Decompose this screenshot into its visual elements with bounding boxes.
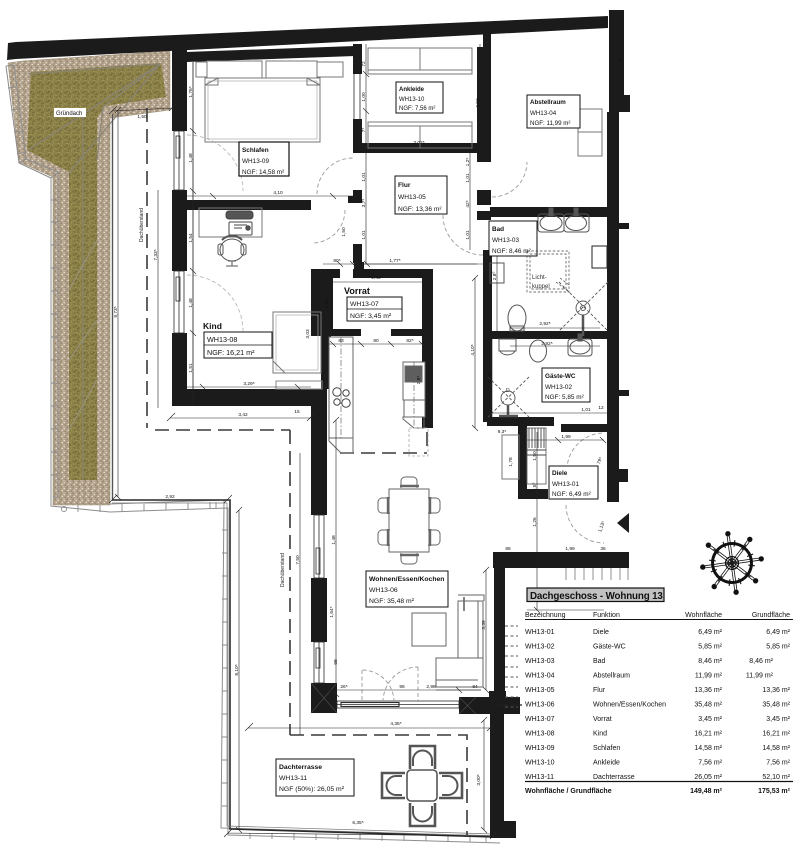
svg-text:4,10: 4,10 [273, 190, 283, 196]
svg-text:2,45⁵: 2,45⁵ [371, 275, 382, 281]
svg-text:3,42: 3,42 [238, 412, 248, 418]
svg-text:NGF: 7,56 m²: NGF: 7,56 m² [399, 106, 435, 112]
svg-text:7⁵: 7⁵ [361, 128, 367, 133]
svg-text:Dachterrasse: Dachterrasse [279, 764, 322, 771]
svg-text:1,99: 1,99 [565, 546, 575, 552]
svg-text:WH13-05: WH13-05 [398, 194, 426, 201]
svg-text:3,03: 3,03 [305, 329, 311, 339]
svg-text:Wohnfläche: Wohnfläche [685, 612, 722, 619]
svg-text:52,10 m²: 52,10 m² [762, 774, 790, 781]
svg-text:Abstellraum: Abstellraum [530, 99, 566, 106]
svg-text:Gäste-WC: Gäste-WC [593, 644, 626, 651]
svg-text:Licht-: Licht- [532, 275, 547, 281]
svg-text:WH13-11: WH13-11 [279, 775, 307, 782]
svg-text:NGF: 35,48 m²: NGF: 35,48 m² [369, 598, 415, 605]
svg-text:WH13-11: WH13-11 [525, 774, 554, 781]
svg-text:82⁵: 82⁵ [406, 338, 413, 344]
svg-text:Flur: Flur [593, 687, 606, 694]
svg-text:3,00⁵: 3,00⁵ [476, 774, 482, 785]
svg-text:6,49 m²: 6,49 m² [766, 629, 790, 636]
svg-text:5,85 m²: 5,85 m² [766, 644, 790, 651]
svg-text:80: 80 [373, 338, 379, 344]
svg-text:WH13-09: WH13-09 [525, 745, 555, 752]
svg-text:Dachüberstand: Dachüberstand [280, 553, 286, 587]
svg-text:Gründach: Gründach [56, 111, 82, 117]
svg-text:80⁵: 80⁵ [333, 258, 340, 264]
svg-text:Schlafen: Schlafen [242, 147, 269, 154]
svg-text:WH13-01: WH13-01 [525, 629, 555, 636]
svg-text:Dachterrasse: Dachterrasse [593, 774, 635, 781]
svg-text:1,50: 1,50 [341, 227, 347, 237]
svg-text:Wohnfläche / Grundfläche: Wohnfläche / Grundfläche [525, 788, 612, 795]
svg-text:3,7⁵: 3,7⁵ [361, 199, 367, 208]
svg-text:NGF: 8,46 m²: NGF: 8,46 m² [492, 248, 531, 255]
svg-text:WH13-03: WH13-03 [525, 658, 555, 665]
svg-text:1,78: 1,78 [508, 457, 514, 467]
svg-text:2,8⁰: 2,8⁰ [492, 272, 498, 281]
svg-text:D: D [506, 388, 510, 394]
svg-text:NGF (50%): 26,05 m²: NGF (50%): 26,05 m² [279, 786, 345, 793]
svg-text:NGF: 16,21 m²: NGF: 16,21 m² [207, 348, 255, 357]
svg-text:149,48 m²: 149,48 m² [690, 788, 723, 795]
svg-text:Diele: Diele [552, 470, 568, 477]
svg-text:NGF: 5,85 m²: NGF: 5,85 m² [545, 394, 584, 401]
svg-text:6,49 m²: 6,49 m² [698, 629, 722, 636]
svg-text:WH13-05: WH13-05 [525, 687, 555, 694]
svg-text:Bad: Bad [593, 658, 606, 665]
svg-text:WH13-07: WH13-07 [350, 301, 379, 308]
svg-text:15: 15 [294, 409, 300, 415]
svg-text:7,56 m²: 7,56 m² [766, 760, 790, 767]
svg-text:3,39: 3,39 [481, 620, 487, 630]
svg-text:Bad: Bad [492, 226, 504, 233]
svg-text:2,92: 2,92 [165, 494, 175, 500]
svg-text:1,01: 1,01 [465, 230, 471, 240]
svg-text:WH13-07: WH13-07 [525, 716, 555, 723]
svg-text:Wohnen/Essen/Kochen: Wohnen/Essen/Kochen [593, 702, 666, 709]
svg-text:3,29⁵: 3,29⁵ [243, 381, 254, 387]
svg-text:NGF: 13,36 m²: NGF: 13,36 m² [398, 206, 442, 213]
svg-text:2,98: 2,98 [426, 684, 436, 690]
svg-text:8,46 m²: 8,46 m² [698, 658, 722, 665]
svg-text:12: 12 [598, 405, 604, 411]
svg-text:1,51: 1,51 [188, 363, 194, 373]
svg-text:Wohnen/Essen/Kochen: Wohnen/Essen/Kochen [369, 576, 444, 583]
svg-text:1,26: 1,26 [532, 517, 538, 527]
svg-text:9,73⁵: 9,73⁵ [113, 306, 119, 317]
svg-text:Kind: Kind [593, 731, 607, 738]
svg-text:13,36 m²: 13,36 m² [694, 687, 722, 694]
svg-text:1,01: 1,01 [465, 173, 471, 183]
svg-text:175,53 m²: 175,53 m² [758, 788, 791, 795]
svg-text:WH13-10: WH13-10 [525, 760, 555, 767]
svg-text:11,99 m²: 11,99 m² [746, 673, 774, 680]
svg-text:Abstellraum: Abstellraum [593, 673, 630, 680]
svg-text:WH13-02: WH13-02 [545, 384, 572, 391]
svg-text:2,92⁵: 2,92⁵ [541, 341, 552, 347]
svg-text:NGF: 3,45 m²: NGF: 3,45 m² [350, 313, 392, 320]
svg-text:2,9⁵: 2,9⁵ [416, 376, 422, 385]
svg-text:Ankleide: Ankleide [593, 760, 620, 767]
svg-text:2,92⁵: 2,92⁵ [539, 321, 550, 327]
svg-text:1,5⁰: 1,5⁰ [532, 483, 538, 492]
svg-text:1,76⁵: 1,76⁵ [188, 86, 194, 97]
svg-text:Bezeichnung: Bezeichnung [525, 612, 566, 619]
svg-text:7,50: 7,50 [295, 555, 301, 565]
svg-text:3,45 m²: 3,45 m² [766, 716, 790, 723]
svg-text:72: 72 [617, 58, 623, 64]
svg-text:Dachgeschoss - Wohnung 13: Dachgeschoss - Wohnung 13 [530, 591, 663, 602]
svg-text:1,2⁵: 1,2⁵ [465, 158, 471, 167]
svg-text:36: 36 [600, 546, 606, 552]
svg-text:26⁵: 26⁵ [340, 684, 347, 690]
svg-text:88: 88 [505, 546, 511, 552]
svg-text:72: 72 [361, 61, 367, 67]
svg-text:83: 83 [338, 338, 344, 344]
svg-text:9,3⁵: 9,3⁵ [498, 429, 507, 435]
svg-text:2,60: 2,60 [487, 373, 493, 383]
svg-text:WH13-01: WH13-01 [552, 481, 579, 488]
svg-text:1,01: 1,01 [581, 407, 591, 413]
svg-text:1,01: 1,01 [361, 172, 367, 182]
svg-text:Funktion: Funktion [593, 612, 620, 619]
svg-text:98: 98 [399, 684, 405, 690]
svg-text:1,50: 1,50 [532, 451, 538, 461]
svg-text:Vorrat: Vorrat [593, 716, 612, 723]
svg-text:WH13-08: WH13-08 [525, 731, 555, 738]
svg-text:16,21 m²: 16,21 m² [694, 731, 722, 738]
svg-text:WH13-03: WH13-03 [492, 237, 519, 244]
svg-text:1,40⁵: 1,40⁵ [324, 297, 330, 308]
svg-text:NGF: 6,49 m²: NGF: 6,49 m² [552, 491, 591, 498]
svg-text:1,00: 1,00 [361, 92, 367, 102]
svg-text:1,48: 1,48 [331, 535, 337, 545]
svg-text:11,99 m²: 11,99 m² [695, 673, 723, 680]
svg-text:1,50: 1,50 [137, 114, 147, 120]
svg-text:7,56 m²: 7,56 m² [698, 760, 722, 767]
svg-text:WH13-06: WH13-06 [525, 702, 555, 709]
svg-text:WH13-04: WH13-04 [525, 673, 555, 680]
svg-text:35,48 m²: 35,48 m² [694, 702, 722, 709]
svg-text:8,46 m²: 8,46 m² [749, 658, 773, 665]
svg-text:kuppel: kuppel [532, 284, 550, 290]
svg-text:Grundfläche: Grundfläche [752, 612, 790, 619]
svg-text:84: 84 [472, 684, 478, 690]
svg-text:WH13-06: WH13-06 [369, 587, 398, 594]
svg-text:3,45 m²: 3,45 m² [698, 716, 722, 723]
svg-text:NGF: 11,99 m²: NGF: 11,99 m² [530, 120, 570, 127]
svg-text:Gäste-WC: Gäste-WC [545, 373, 576, 380]
svg-text:Diele: Diele [593, 629, 609, 636]
svg-text:Flur: Flur [398, 182, 411, 189]
svg-text:1,48: 1,48 [188, 153, 194, 163]
svg-text:1,54: 1,54 [188, 233, 194, 243]
svg-text:NGF: 14,58 m²: NGF: 14,58 m² [242, 169, 284, 176]
svg-text:Schlafen: Schlafen [593, 745, 620, 752]
svg-text:Vorrat: Vorrat [344, 286, 370, 296]
svg-text:26,05 m²: 26,05 m² [694, 774, 722, 781]
svg-text:WH13-10: WH13-10 [399, 97, 425, 103]
svg-text:98: 98 [333, 659, 339, 665]
svg-text:WH13-02: WH13-02 [525, 644, 555, 651]
svg-text:35,48 m²: 35,48 m² [762, 702, 790, 709]
svg-text:1,64⁵: 1,64⁵ [329, 606, 335, 617]
svg-text:16,21 m²: 16,21 m² [762, 731, 790, 738]
svg-text:WH13-09: WH13-09 [242, 158, 269, 165]
svg-text:Kind: Kind [203, 321, 222, 331]
svg-text:1,99: 1,99 [561, 434, 571, 440]
svg-text:1,48: 1,48 [188, 298, 194, 308]
svg-text:1,01: 1,01 [361, 230, 367, 240]
svg-text:8,10⁵: 8,10⁵ [234, 664, 240, 675]
svg-text:14,58 m²: 14,58 m² [694, 745, 722, 752]
svg-text:Ankleide: Ankleide [399, 87, 425, 93]
svg-text:1,77⁵: 1,77⁵ [389, 258, 400, 264]
svg-text:3,02⁵: 3,02⁵ [413, 140, 424, 146]
svg-text:Dachüberstand: Dachüberstand [139, 208, 145, 242]
svg-text:14,58 m²: 14,58 m² [762, 745, 790, 752]
svg-text:6,35⁵: 6,35⁵ [352, 820, 363, 826]
svg-text:2,50: 2,50 [475, 98, 481, 108]
svg-text:4,10⁵: 4,10⁵ [470, 344, 476, 355]
svg-text:7,33⁵: 7,33⁵ [153, 249, 159, 260]
svg-text:42⁵: 42⁵ [465, 200, 471, 207]
svg-text:13,36 m²: 13,36 m² [762, 687, 790, 694]
svg-text:WH13-04: WH13-04 [530, 110, 557, 117]
svg-text:4,35⁵: 4,35⁵ [390, 721, 401, 727]
svg-text:5,85 m²: 5,85 m² [698, 644, 722, 651]
svg-text:WH13-08: WH13-08 [207, 335, 237, 344]
